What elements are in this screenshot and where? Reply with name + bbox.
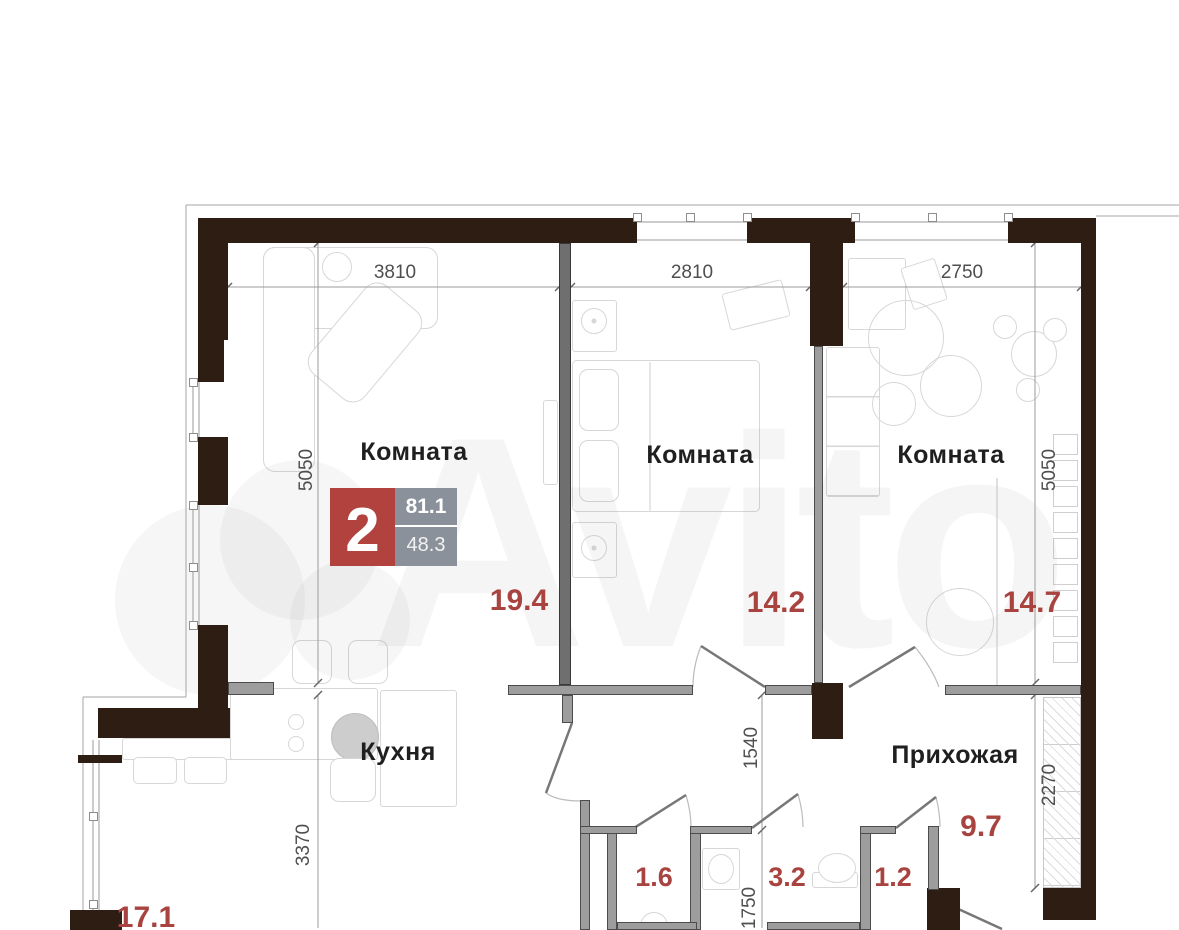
wall-room2-room3 bbox=[814, 346, 823, 683]
wall-hall-top-2 bbox=[765, 685, 812, 695]
storage-door-arc bbox=[686, 795, 691, 827]
dim-kitchen-height: 3370 bbox=[293, 824, 315, 866]
wall-hall-top-3 bbox=[945, 685, 1081, 695]
window-mullion bbox=[189, 621, 198, 630]
hallway-area: 9.7 bbox=[921, 810, 1041, 844]
window-mullion bbox=[851, 213, 860, 222]
window-mullion bbox=[743, 213, 752, 222]
floor-plan: Avito bbox=[0, 0, 1179, 930]
window-mullion bbox=[928, 213, 937, 222]
wall-hall-top-1 bbox=[508, 685, 693, 695]
wall-bath-left bbox=[580, 800, 590, 930]
exterior-wall-bottom-right bbox=[1043, 888, 1096, 920]
window-mullion bbox=[89, 812, 98, 821]
wall-storage-top bbox=[580, 826, 637, 834]
kitchen-door-arc bbox=[546, 793, 581, 801]
wall-stub-kitchen-door bbox=[562, 695, 573, 723]
exterior-wall-left-2 bbox=[198, 340, 224, 382]
exterior-wall-left-1 bbox=[198, 218, 228, 340]
window-mullion bbox=[686, 213, 695, 222]
rooms-count-badge: 2 bbox=[330, 488, 395, 566]
window-mullion bbox=[189, 501, 198, 510]
room1-label: Комната bbox=[324, 438, 504, 467]
window-mullion bbox=[189, 433, 198, 442]
living-area-value: 48.3 bbox=[395, 527, 457, 564]
exterior-wall-left-4 bbox=[198, 625, 228, 713]
window-mullion bbox=[189, 378, 198, 387]
storage-door-leaf bbox=[634, 795, 686, 828]
room2-area: 14.2 bbox=[716, 586, 836, 620]
room2-door-arc bbox=[693, 646, 701, 687]
room2-door-leaf bbox=[701, 646, 765, 687]
wall-bottom-edge-2 bbox=[767, 922, 860, 930]
room3-door-arc bbox=[915, 647, 939, 687]
room3-door-leaf bbox=[849, 647, 915, 687]
storage-area: 1.6 bbox=[604, 862, 704, 893]
entrance-pier bbox=[927, 888, 960, 930]
exterior-wall-right bbox=[1081, 243, 1096, 890]
dim-closet-height: 2270 bbox=[1039, 764, 1061, 806]
pier-room2-room3 bbox=[810, 243, 843, 346]
dim-hall-height: 1540 bbox=[741, 727, 763, 769]
dim-bath-height: 1750 bbox=[739, 887, 761, 929]
bathroom-door-arc bbox=[798, 794, 803, 827]
window-glazing bbox=[93, 222, 1008, 930]
exterior-wall-top-left bbox=[198, 218, 637, 243]
exterior-wall-top-middle bbox=[747, 218, 855, 243]
wall-room1-room2 bbox=[559, 243, 571, 685]
dim-room3-height: 5050 bbox=[1039, 449, 1061, 491]
wall-wc-top bbox=[860, 826, 896, 834]
exterior-wall-top-right bbox=[1008, 218, 1096, 243]
window-mullion bbox=[1004, 213, 1013, 222]
hallway-label: Прихожая bbox=[855, 741, 1055, 770]
dim-room3-width: 2750 bbox=[912, 262, 1012, 284]
exterior-wall-left-3 bbox=[198, 437, 228, 505]
wall-bottom-edge-1 bbox=[617, 922, 697, 930]
apartment-badge: 2 81.1 48.3 bbox=[330, 488, 457, 566]
kitchen-area: 17.1 bbox=[86, 901, 206, 930]
window-mullion bbox=[633, 213, 642, 222]
dim-room1-height: 5050 bbox=[296, 449, 318, 491]
kitchen-door-leaf bbox=[546, 723, 572, 793]
kitchen-label: Кухня bbox=[308, 738, 488, 767]
room2-label: Комната bbox=[610, 441, 790, 470]
wc-area: 1.2 bbox=[843, 862, 943, 893]
room3-label: Комната bbox=[861, 441, 1041, 470]
room1-area: 19.4 bbox=[459, 584, 579, 618]
exterior-wall-kitchen-step bbox=[98, 708, 230, 738]
kitchen-low-wall bbox=[228, 682, 274, 695]
hallway-column bbox=[812, 683, 843, 739]
window-mullion bbox=[189, 563, 198, 572]
kitchen-window-sill bbox=[78, 755, 122, 763]
bathroom-door-leaf bbox=[752, 794, 798, 828]
area-badge: 81.1 48.3 bbox=[395, 488, 457, 566]
total-area-value: 81.1 bbox=[395, 488, 457, 527]
dim-room1-width: 3810 bbox=[345, 262, 445, 284]
dim-room2-width: 2810 bbox=[642, 262, 742, 284]
room3-area: 14.7 bbox=[972, 586, 1092, 620]
wall-bath-top bbox=[690, 826, 752, 834]
